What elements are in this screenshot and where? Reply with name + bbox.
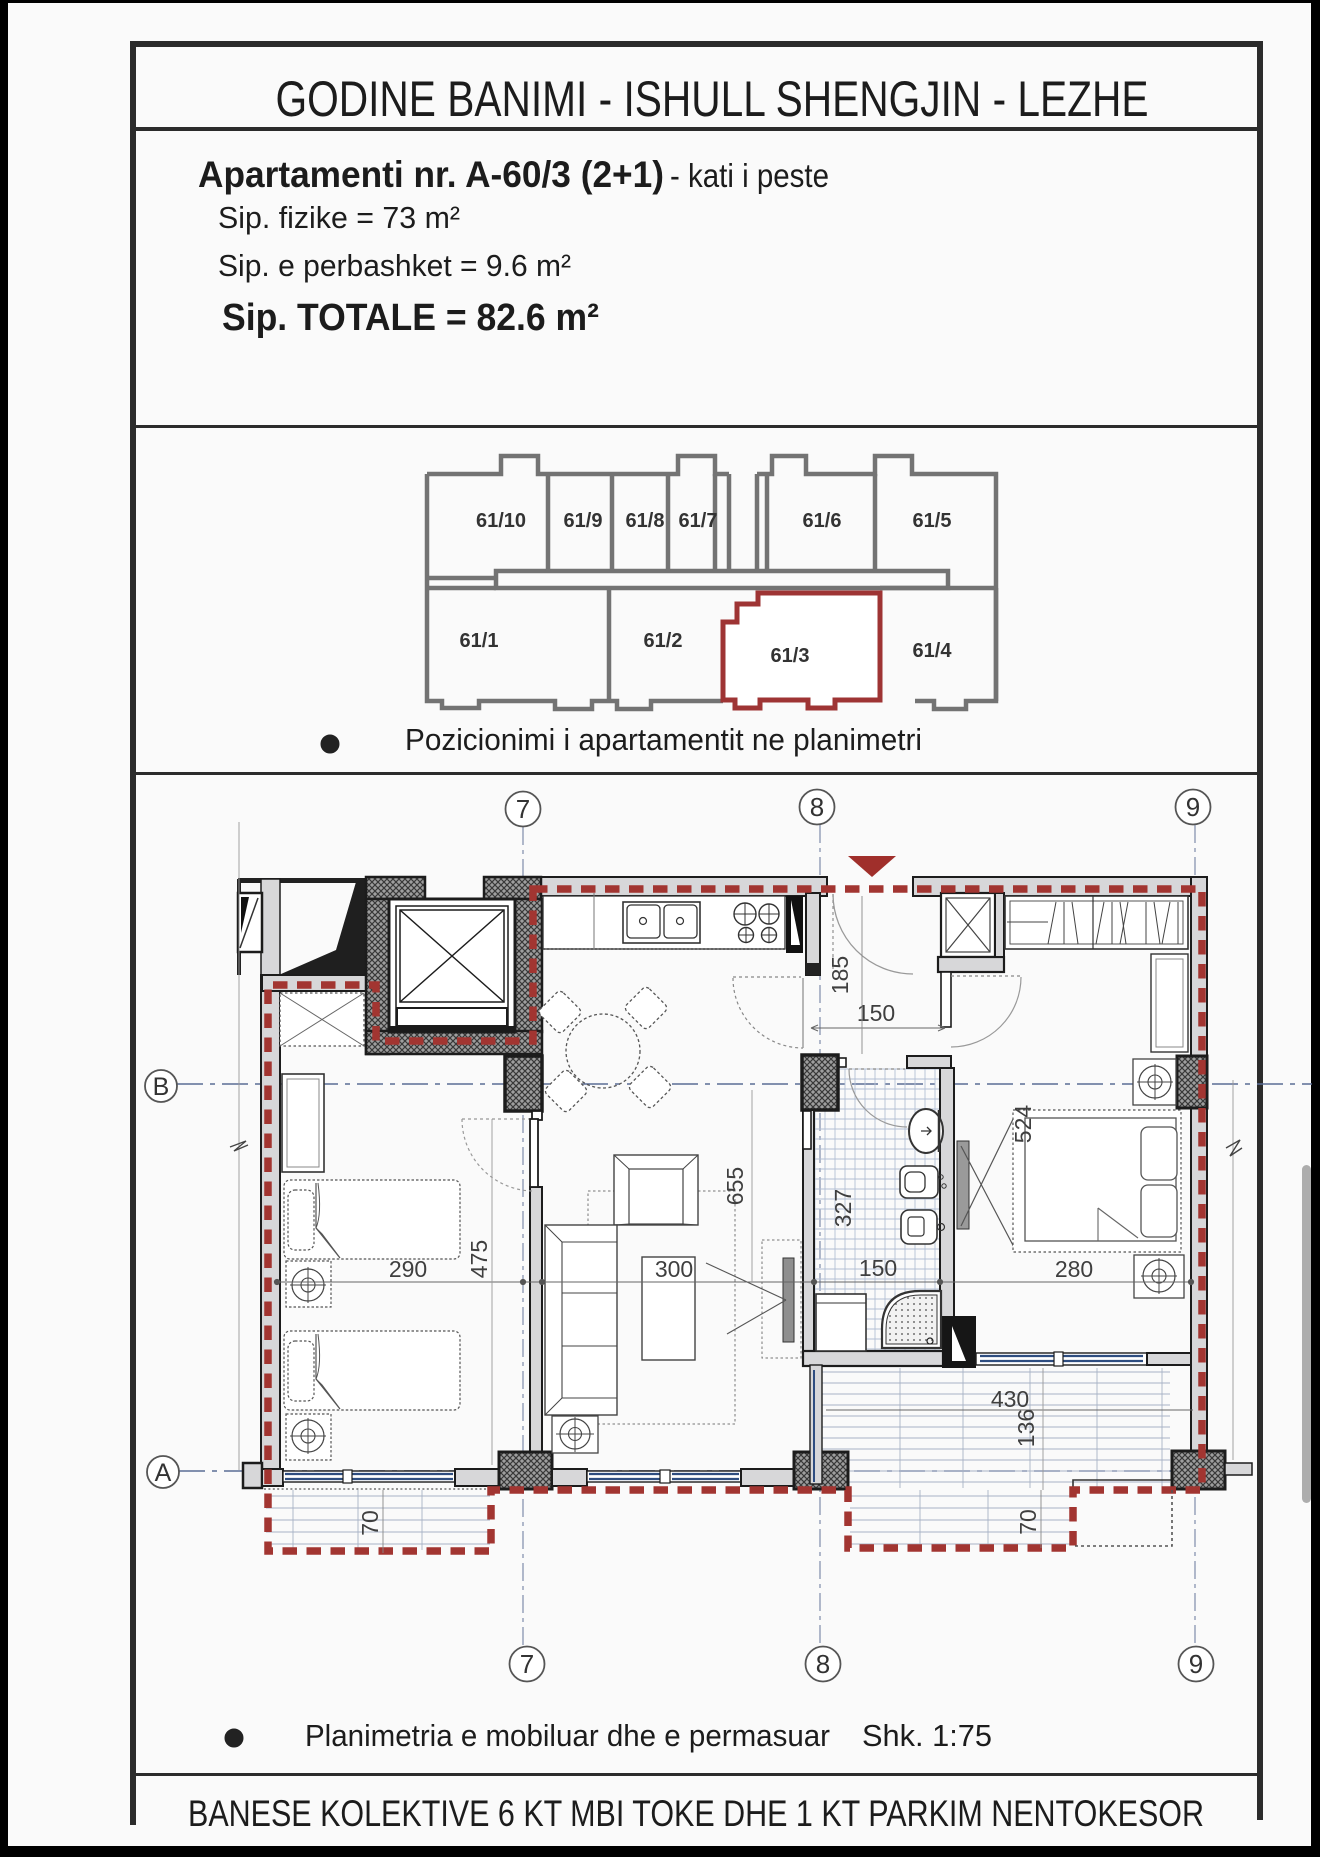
- svg-text:GODINE BANIMI - ISHULL SHENGJI: GODINE BANIMI - ISHULL SHENGJIN - LEZHE: [276, 71, 1149, 127]
- svg-text:Pozicionimi i apartamentit ne: Pozicionimi i apartamentit ne planimetri: [405, 722, 922, 757]
- svg-text:61/4: 61/4: [913, 640, 953, 662]
- svg-text:61/9: 61/9: [564, 510, 603, 532]
- svg-text:Sip. e perbashket = 9.6 m²: Sip. e perbashket = 9.6 m²: [218, 248, 571, 283]
- svg-text:61/1: 61/1: [460, 630, 499, 652]
- svg-text:8: 8: [816, 1649, 830, 1679]
- svg-text:B: B: [153, 1073, 170, 1101]
- svg-text:61/2: 61/2: [644, 630, 683, 652]
- svg-text:- kati i peste: - kati i peste: [670, 157, 829, 194]
- svg-text:327: 327: [830, 1189, 856, 1227]
- svg-text:150: 150: [859, 1255, 897, 1281]
- svg-text:150: 150: [857, 1000, 895, 1026]
- svg-text:Sip. fizike = 73 m²: Sip. fizike = 73 m²: [218, 200, 460, 235]
- svg-text:61/6: 61/6: [803, 510, 842, 532]
- svg-text:70: 70: [357, 1510, 383, 1536]
- svg-text:9: 9: [1186, 792, 1200, 822]
- svg-text:9: 9: [1189, 1649, 1203, 1679]
- svg-text:136: 136: [1013, 1409, 1039, 1447]
- svg-text:Sip. TOTALE = 82.6 m²: Sip. TOTALE = 82.6 m²: [222, 297, 599, 339]
- svg-text:475: 475: [466, 1240, 492, 1278]
- svg-text:7: 7: [516, 794, 530, 824]
- svg-text:70: 70: [1015, 1509, 1041, 1535]
- svg-text:Apartamenti nr. A-60/3 (2+1): Apartamenti nr. A-60/3 (2+1): [198, 154, 664, 195]
- svg-text:61/3: 61/3: [771, 645, 810, 667]
- svg-text:185: 185: [827, 956, 853, 994]
- svg-text:BANESE KOLEKTIVE 6 KT MBI TOKE: BANESE KOLEKTIVE 6 KT MBI TOKE DHE 1 KT …: [188, 1793, 1204, 1834]
- svg-text:8: 8: [810, 792, 824, 822]
- svg-text:61/5: 61/5: [913, 510, 952, 532]
- svg-text:A: A: [155, 1459, 172, 1487]
- svg-text:61/8: 61/8: [626, 510, 665, 532]
- svg-text:Shk. 1:75: Shk. 1:75: [862, 1718, 992, 1753]
- svg-text:61/10: 61/10: [476, 510, 526, 532]
- svg-text:61/7: 61/7: [679, 510, 718, 532]
- svg-text:7: 7: [520, 1649, 534, 1679]
- svg-text:Planimetria e mobiluar dhe e p: Planimetria e mobiluar dhe e permasuar: [305, 1718, 830, 1753]
- svg-text:300: 300: [655, 1256, 693, 1282]
- svg-text:290: 290: [389, 1256, 427, 1282]
- svg-text:430: 430: [991, 1386, 1029, 1412]
- svg-text:655: 655: [722, 1167, 748, 1205]
- svg-text:280: 280: [1055, 1256, 1093, 1282]
- svg-text:524: 524: [1010, 1105, 1036, 1144]
